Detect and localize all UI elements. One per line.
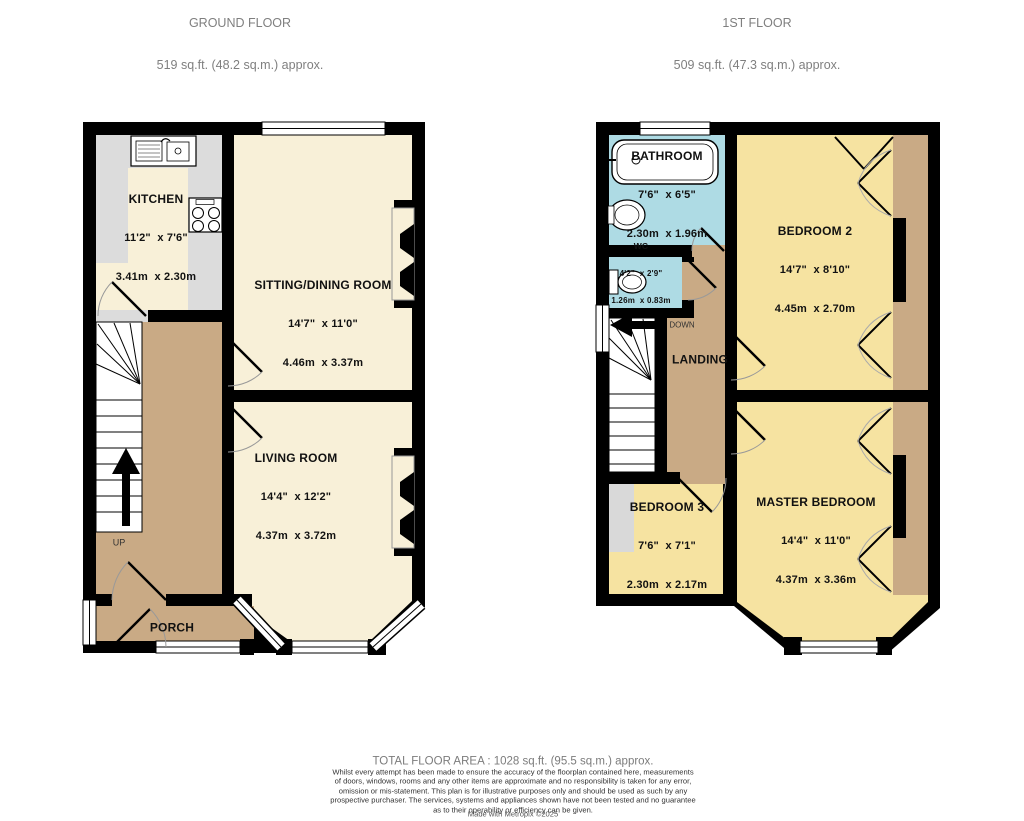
up-label: UP <box>113 537 126 550</box>
master-bedroom-label: MASTER BEDROOM 14'4" x 11'0" 4.37m x 3.3… <box>756 470 875 600</box>
sitting-room-chimney-recess <box>392 200 425 308</box>
living-room-label: LIVING ROOM 14'4" x 12'2" 4.37m x 3.72m <box>255 426 338 556</box>
first-floor-subtitle: 509 sq.ft. (47.3 sq.m.) approx. <box>674 58 841 72</box>
landing-floor <box>667 318 725 484</box>
first-floor-title-line: 1ST FLOOR <box>674 16 841 30</box>
metropix-credit: Made with Metropix ©2025 <box>468 808 558 821</box>
ground-floor-subtitle: 519 sq.ft. (48.2 sq.m.) approx. <box>157 58 324 72</box>
first-floor-title: 1ST FLOOR 509 sq.ft. (47.3 sq.m.) approx… <box>674 0 841 86</box>
kitchen-sink-icon <box>131 136 196 166</box>
bedroom3-label: BEDROOM 3 7'6" x 7'1" 2.30m x 2.17m <box>627 475 707 605</box>
gf-stairs <box>96 322 142 532</box>
floorplan-svg <box>0 0 1024 821</box>
ground-floor-title-line: GROUND FLOOR <box>157 16 324 30</box>
living-room-chimney-recess <box>392 448 425 556</box>
bedroom2-label: BEDROOM 2 14'7" x 8'10" 4.45m x 2.70m <box>775 199 855 329</box>
porch-label: PORCH <box>150 622 194 635</box>
floorplan-page: GROUND FLOOR 519 sq.ft. (48.2 sq.m.) app… <box>0 0 1024 821</box>
ff-stairs <box>609 313 662 472</box>
kitchen-label: KITCHEN 11'2" x 7'6" 3.41m x 2.30m <box>116 167 196 297</box>
ground-floor-title: GROUND FLOOR 519 sq.ft. (48.2 sq.m.) app… <box>157 0 324 86</box>
sitting-dining-room-label: SITTING/DINING ROOM 14'7" x 11'0" 4.46m … <box>254 253 391 383</box>
down-label: DOWN <box>669 319 694 332</box>
landing-label: LANDING <box>672 354 728 367</box>
wc-label: WC 4'2" x 2'9" 1.26m x 0.83m <box>611 224 670 314</box>
